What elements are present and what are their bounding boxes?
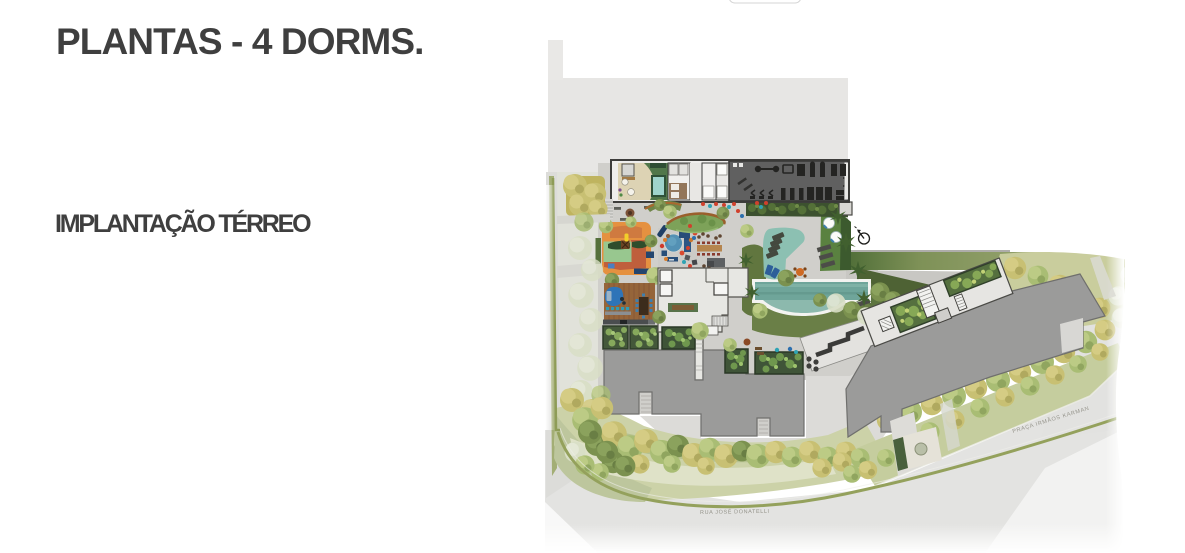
svg-text:RUA JOSÉ DONATELLI: RUA JOSÉ DONATELLI: [700, 508, 770, 516]
